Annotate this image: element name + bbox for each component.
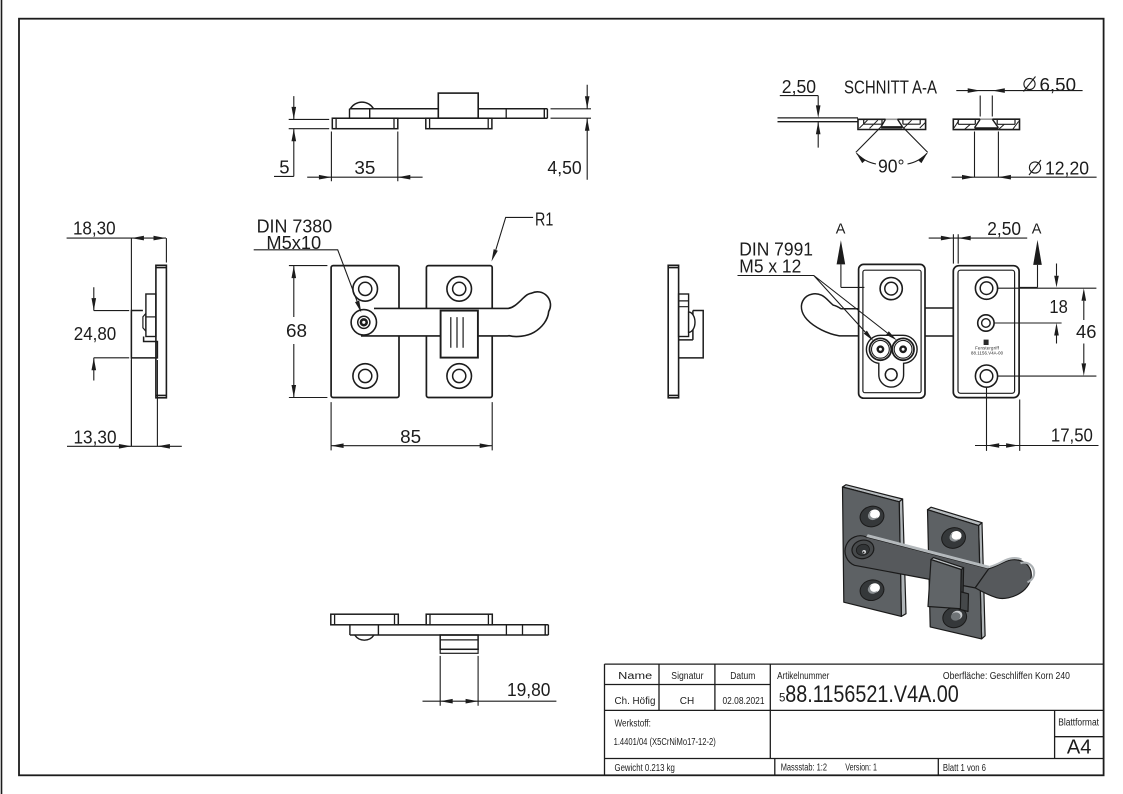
svg-text:M5 x 12: M5 x 12 bbox=[739, 256, 801, 277]
svg-text:02.08.2021: 02.08.2021 bbox=[723, 696, 765, 707]
svg-text:Signatur: Signatur bbox=[671, 671, 704, 682]
svg-text:90°: 90° bbox=[878, 156, 905, 177]
svg-text:Blattformat: Blattformat bbox=[1058, 718, 1099, 729]
svg-text:13,30: 13,30 bbox=[74, 427, 117, 448]
svg-text:A4: A4 bbox=[1067, 737, 1091, 759]
svg-text:12,20: 12,20 bbox=[1045, 158, 1089, 179]
svg-text:Blatt 1 von 6: Blatt 1 von 6 bbox=[943, 763, 986, 774]
svg-text:Massstab: 1:2: Massstab: 1:2 bbox=[781, 763, 828, 774]
svg-text:88.1156.V4A-00: 88.1156.V4A-00 bbox=[971, 350, 1004, 355]
svg-text:SCHNITT A-A: SCHNITT A-A bbox=[844, 77, 938, 98]
svg-text:68: 68 bbox=[286, 320, 307, 341]
svg-text:18,30: 18,30 bbox=[73, 218, 116, 239]
svg-text:46: 46 bbox=[1076, 321, 1096, 342]
svg-text:A: A bbox=[1032, 222, 1042, 238]
svg-text:88.1156521.V4A.00: 88.1156521.V4A.00 bbox=[785, 681, 959, 708]
svg-text:Name: Name bbox=[618, 671, 653, 682]
svg-text:CH: CH bbox=[680, 696, 694, 707]
svg-text:5: 5 bbox=[279, 157, 289, 178]
svg-text:4,50: 4,50 bbox=[547, 157, 581, 178]
svg-text:24,80: 24,80 bbox=[74, 323, 117, 344]
svg-text:A: A bbox=[836, 222, 846, 238]
svg-text:85: 85 bbox=[400, 426, 421, 447]
svg-text:19,80: 19,80 bbox=[507, 679, 551, 700]
svg-text:Version: 1: Version: 1 bbox=[845, 763, 877, 774]
svg-text:R1: R1 bbox=[535, 209, 553, 230]
svg-text:18: 18 bbox=[1049, 296, 1067, 317]
svg-text:Datum: Datum bbox=[730, 671, 755, 682]
svg-text:Oberfläche: Geschliffen Korn: Oberfläche: Geschliffen Korn 240 bbox=[943, 671, 1070, 682]
svg-text:1.4401/04 (X5CrNiMo17-12-2): 1.4401/04 (X5CrNiMo17-12-2) bbox=[614, 737, 716, 748]
svg-text:2,50: 2,50 bbox=[987, 218, 1021, 239]
svg-text:Gewicht 0.213 kg: Gewicht 0.213 kg bbox=[615, 763, 675, 774]
svg-text:6,50: 6,50 bbox=[1040, 74, 1077, 95]
svg-text:17,50: 17,50 bbox=[1051, 425, 1093, 446]
svg-text:Werkstoff:: Werkstoff: bbox=[615, 719, 651, 730]
svg-text:35: 35 bbox=[354, 157, 375, 178]
svg-text:2,50: 2,50 bbox=[782, 76, 816, 97]
svg-text:Ch. Höfig: Ch. Höfig bbox=[615, 696, 656, 707]
